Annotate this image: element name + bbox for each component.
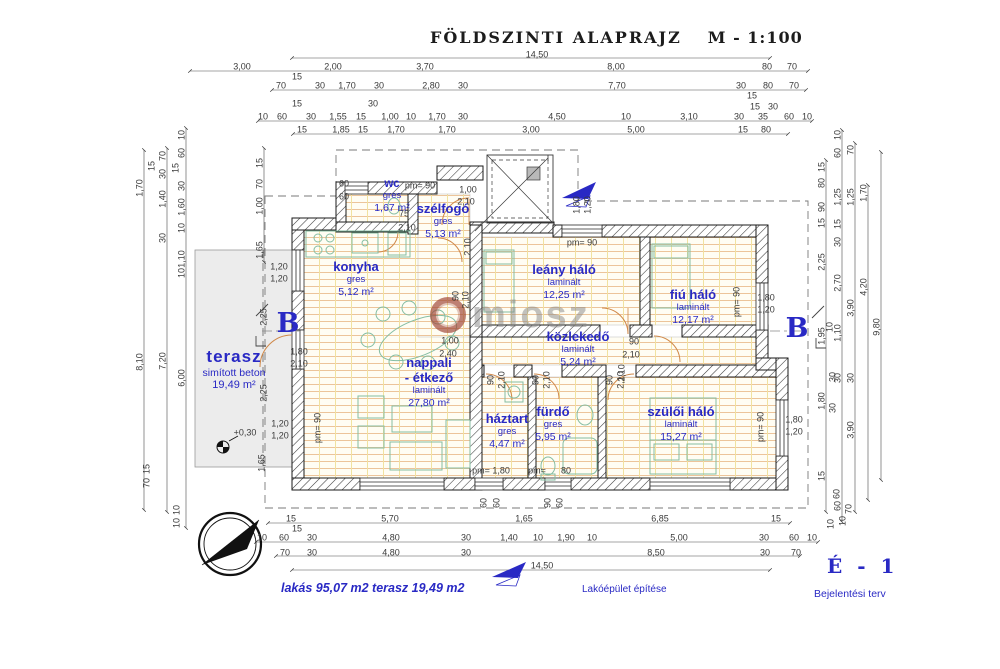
footer-project-text: Lakóépület építése	[582, 584, 667, 595]
floorplan-canvas: miosz FÖLDSZINTI ALAPRAJZM - 1:100 14,50…	[0, 0, 1000, 669]
dimension-label: 90	[606, 375, 615, 385]
dimension-label: 2,00	[324, 63, 342, 72]
dimension-label: 30	[736, 82, 746, 91]
dimension-label: 8,10	[136, 353, 145, 371]
dimension-label: 10	[621, 113, 631, 122]
dimension-label: 30	[834, 237, 843, 247]
dimension-label: 70	[845, 504, 854, 514]
section-marker-letter: B	[786, 315, 809, 342]
dimension-label: 5,00	[627, 126, 645, 135]
dimension-label: 30	[760, 549, 770, 558]
dimension-label: 30	[847, 373, 856, 383]
room-floor-material: gres	[486, 427, 529, 438]
dimension-label: 10	[178, 223, 187, 233]
dimension-label: 3,70	[416, 63, 434, 72]
dimension-label: 14,50	[531, 562, 554, 571]
dimension-label: 5,70	[381, 515, 399, 524]
room-floor-material: gres	[535, 420, 571, 431]
dimension-label: 15	[771, 515, 781, 524]
room-name: szélfogó	[417, 202, 470, 217]
dimension-label: 1,85	[332, 126, 350, 135]
title-scale: M - 1:100	[708, 28, 803, 47]
dimension-label: 10	[178, 268, 187, 278]
dimension-label: 10	[258, 113, 268, 122]
dimension-label: 15	[172, 163, 181, 173]
dimension-label: 10	[834, 130, 843, 140]
dimension-label: 15	[738, 126, 748, 135]
room-name: fürdő	[535, 405, 571, 420]
dimension-label: 10	[587, 534, 597, 543]
dimension-label: 30	[829, 403, 838, 413]
dimension-label: 2,25	[818, 253, 827, 271]
room-label: wc gres 1,67 m²	[374, 178, 410, 214]
dimension-label: 90	[487, 375, 496, 385]
dimension-label: 30	[461, 534, 471, 543]
room-area: 12,17 m²	[670, 314, 716, 326]
room-area: 27,80 m²	[405, 397, 453, 409]
room-area: 19,49 m²	[202, 379, 265, 392]
dimension-label: 1,00	[459, 186, 477, 195]
dimension-label: 1,65	[256, 241, 265, 259]
room-floor-material: gres	[333, 275, 379, 286]
room-label: nappali - étkező laminált 27,80 m²	[405, 356, 453, 409]
room-name: szülői háló	[647, 405, 714, 420]
dimension-label: 30	[458, 113, 468, 122]
dimension-label: 80	[561, 467, 571, 476]
dimension-label: 30	[461, 549, 471, 558]
dimension-label: 2,10	[617, 371, 626, 389]
dimension-label: 15	[818, 471, 827, 481]
dimension-label: 2,10	[462, 291, 471, 309]
dimension-label: 2,80	[422, 82, 440, 91]
section-arrow-bottom-icon	[492, 562, 526, 586]
room-name: nappali	[405, 356, 453, 371]
dimension-label: 1,00	[256, 197, 265, 215]
dimension-label: 15	[286, 515, 296, 524]
dimension-label: 8,00	[607, 63, 625, 72]
room-area: 15,27 m²	[647, 431, 714, 443]
room-area: 1,67 m²	[374, 202, 410, 214]
dimension-label: 15	[818, 218, 827, 228]
dimension-label: 1,20	[785, 428, 803, 437]
dimension-label: 10	[257, 534, 267, 543]
entry-porch	[475, 155, 553, 231]
room-label: fiú háló laminált 12,17 m²	[670, 288, 716, 326]
dimension-label: 3,00	[522, 126, 540, 135]
dimension-label: 30	[734, 113, 744, 122]
dimension-label: 70	[789, 82, 799, 91]
dimension-label: 3,00	[233, 63, 251, 72]
dimension-label: 2,10	[464, 238, 473, 256]
dimension-label: 10	[173, 505, 182, 515]
dimension-label: 30	[159, 233, 168, 243]
dimension-label: 60	[834, 501, 843, 511]
dimension-label: 15	[292, 100, 302, 109]
footer-sheet-number: É - 1	[827, 554, 898, 578]
dimension-label: 10	[178, 130, 187, 140]
room-area: 5,24 m²	[547, 356, 610, 368]
dimension-label: 4,20	[860, 278, 869, 296]
room-name: leány háló	[532, 263, 596, 278]
dimension-label: 70	[276, 82, 286, 91]
dimension-label: 30	[368, 100, 378, 109]
room-name: közlekedő	[547, 330, 610, 345]
room-label: terasz simított beton 19,49 m²	[202, 347, 265, 391]
room-name-line2: - étkező	[405, 371, 453, 386]
dimension-label: pm=	[528, 467, 546, 476]
dimension-label: 1,95	[818, 327, 827, 345]
dimension-label: 70	[143, 478, 152, 488]
dimension-label: 90	[532, 375, 541, 385]
dimension-label: 2,10	[543, 371, 552, 389]
dimension-label: 7,70	[608, 82, 626, 91]
dimension-label: 1,70	[136, 179, 145, 197]
dimension-label: 60	[493, 498, 502, 508]
room-floor-material: gres	[374, 191, 410, 202]
dimension-label: 60	[833, 489, 842, 499]
room-name: fiú háló	[670, 288, 716, 303]
dimension-label: 1,55	[329, 113, 347, 122]
dimension-label: 2,70	[834, 274, 843, 292]
room-label: háztart gres 4,47 m²	[486, 412, 529, 450]
section-marker-letter: B	[277, 310, 300, 337]
dimension-label: 30	[759, 534, 769, 543]
dimension-label: 8,50	[647, 549, 665, 558]
dimension-label: pm= 90	[733, 287, 742, 317]
room-area: 4,47 m²	[486, 438, 529, 450]
dimension-label: 10	[173, 518, 182, 528]
room-floor-material: gres	[417, 217, 470, 228]
dimension-label: 10	[839, 516, 848, 526]
dimension-label: 3,90	[847, 299, 856, 317]
dimension-label: 1,20	[271, 420, 289, 429]
dimension-label: 7,20	[159, 352, 168, 370]
dimension-label: 1,00	[441, 337, 459, 346]
dimension-label: 6,00	[178, 369, 187, 387]
dimension-label: 3,10	[680, 113, 698, 122]
dimension-label: 90	[818, 202, 827, 212]
dimension-label: 1,65	[258, 454, 267, 472]
dimension-label: 1,20	[270, 263, 288, 272]
dimension-label: 9,80	[873, 318, 882, 336]
dimension-label: 70	[159, 151, 168, 161]
dimension-label: 90	[544, 498, 553, 508]
dimension-label: 1,60	[178, 198, 187, 216]
room-area: 5,95 m²	[535, 431, 571, 443]
dimension-label: 60	[339, 180, 349, 189]
dimension-label: 1,10	[178, 250, 187, 268]
dimension-label: 1,20	[271, 432, 289, 441]
dimension-label: 60	[784, 113, 794, 122]
room-floor-material: laminált	[547, 345, 610, 356]
dimension-label: 15	[356, 113, 366, 122]
dimension-label: 60	[339, 193, 349, 202]
dimension-label: 60	[556, 498, 565, 508]
dimension-label: 70	[791, 549, 801, 558]
dimension-label: 15	[358, 126, 368, 135]
room-name: terasz	[202, 347, 265, 367]
dimension-label: 1,80	[573, 196, 582, 214]
room-name: konyha	[333, 260, 379, 275]
dimension-label: 30	[768, 103, 778, 112]
dimension-label: 60	[480, 498, 489, 508]
room-area: 5,12 m²	[333, 286, 379, 298]
page-title: FÖLDSZINTI ALAPRAJZM - 1:100	[430, 28, 780, 47]
dimension-label: 1,65	[515, 515, 533, 524]
room-label: fürdő gres 5,95 m²	[535, 405, 571, 443]
dimension-label: 14,50	[526, 51, 549, 60]
dimension-label: 1,70	[387, 126, 405, 135]
dimension-label: 1,25	[847, 188, 856, 206]
room-label: konyha gres 5,12 m²	[333, 260, 379, 298]
dimension-label: 60	[178, 148, 187, 158]
dimension-label: pm= 90	[314, 413, 323, 443]
dimension-label: 3,90	[847, 421, 856, 439]
dimension-label: 80	[762, 63, 772, 72]
dimension-label: 15	[834, 219, 843, 229]
dimension-label: 60	[277, 113, 287, 122]
dimension-label: 2,10	[622, 351, 640, 360]
dimension-label: 15	[750, 103, 760, 112]
dimension-label: 10	[406, 113, 416, 122]
dimension-label: 60	[834, 148, 843, 158]
dimension-label: 2,25	[260, 308, 269, 326]
dimension-label: 80	[761, 126, 771, 135]
dimension-label: 30	[307, 549, 317, 558]
dimension-label: 60	[789, 534, 799, 543]
dimension-label: 1,80	[818, 392, 827, 410]
dimension-label: 1,40	[500, 534, 518, 543]
dimension-label: 70	[256, 179, 265, 189]
dimension-label: pm= 1,80	[472, 467, 510, 476]
dimension-label: 15	[143, 464, 152, 474]
north-compass-icon	[199, 513, 261, 575]
room-area: 12,25 m²	[532, 289, 596, 301]
dimension-label: 30	[159, 169, 168, 179]
dimension-label: 4,80	[382, 549, 400, 558]
dimension-label: 80	[763, 82, 773, 91]
room-floor-material: laminált	[670, 303, 716, 314]
dimension-label: 10	[533, 534, 543, 543]
dimension-label: 15	[818, 162, 827, 172]
dimension-label: 30	[307, 534, 317, 543]
dimension-label: 30	[834, 373, 843, 383]
dimension-label: 1,20	[584, 196, 593, 214]
room-label: közlekedő laminált 5,24 m²	[547, 330, 610, 368]
dimension-label: 10	[807, 534, 817, 543]
dimension-label: 15	[148, 161, 157, 171]
room-label: leány háló laminált 12,25 m²	[532, 263, 596, 301]
dimension-label: 90	[452, 291, 461, 301]
dimension-label: 15	[297, 126, 307, 135]
dimension-label: 35	[758, 113, 768, 122]
dimension-label: +0,30	[234, 429, 257, 438]
room-floor-material: simított beton	[202, 367, 265, 379]
dimension-label: pm= 90	[567, 239, 597, 248]
dimension-label: 2,10	[290, 360, 308, 369]
dimension-label: 60	[279, 534, 289, 543]
dimension-label: 1,80	[757, 294, 775, 303]
dimension-label: 30	[306, 113, 316, 122]
dimension-label: 1,40	[159, 190, 168, 208]
room-floor-material: laminált	[532, 278, 596, 289]
room-floor-material: laminált	[647, 420, 714, 431]
room-floor-material: laminált	[405, 386, 453, 397]
room-area: 5,13 m²	[417, 228, 470, 240]
dimension-label: 4,80	[382, 534, 400, 543]
dimension-label: 70	[280, 549, 290, 558]
dimension-label: 1,70	[428, 113, 446, 122]
dimension-label: 30	[178, 181, 187, 191]
dimension-label: 1,00	[381, 113, 399, 122]
room-name: háztart	[486, 412, 529, 427]
dimension-label: 30	[315, 82, 325, 91]
dimension-label: 10	[827, 519, 836, 529]
dimension-label: 4,50	[548, 113, 566, 122]
dimension-label: 1,25	[834, 188, 843, 206]
dimension-label: 15	[292, 73, 302, 82]
dimension-label: 6,85	[651, 515, 669, 524]
dimension-label: 80	[818, 178, 827, 188]
footer-doc-type: Bejelentési terv	[814, 588, 886, 600]
dimension-label: 90	[629, 338, 639, 347]
dimension-label: 1,20	[757, 306, 775, 315]
title-main: FÖLDSZINTI ALAPRAJZ	[430, 28, 682, 47]
dimension-label: 2,10	[498, 371, 507, 389]
dimension-label: 70	[787, 63, 797, 72]
dimension-label: 15	[747, 92, 757, 101]
footer-areas-text: lakás 95,07 m2 terasz 19,49 m2	[281, 581, 464, 595]
dimension-label: 30	[458, 82, 468, 91]
dimension-label: 2,10	[398, 224, 416, 233]
dimension-label: 1,90	[557, 534, 575, 543]
dimension-label: 1,70	[438, 126, 456, 135]
dimension-label: 1,70	[338, 82, 356, 91]
dimension-label: 1,70	[860, 184, 869, 202]
dimension-label: 5,00	[670, 534, 688, 543]
dimension-label: 15	[292, 525, 302, 534]
dimension-label: pm= 90	[757, 412, 766, 442]
room-label: szélfogó gres 5,13 m²	[417, 202, 470, 240]
dimension-label: 30	[374, 82, 384, 91]
dimension-label: 1,20	[270, 275, 288, 284]
dimension-label: 15	[256, 158, 265, 168]
dimension-label: 10	[802, 113, 812, 122]
dimension-label: 70	[847, 145, 856, 155]
dimension-label: 1,80	[785, 416, 803, 425]
room-label: szülői háló laminált 15,27 m²	[647, 405, 714, 443]
dimension-label: 1,10	[834, 324, 843, 342]
dimension-label: 1,80	[290, 348, 308, 357]
